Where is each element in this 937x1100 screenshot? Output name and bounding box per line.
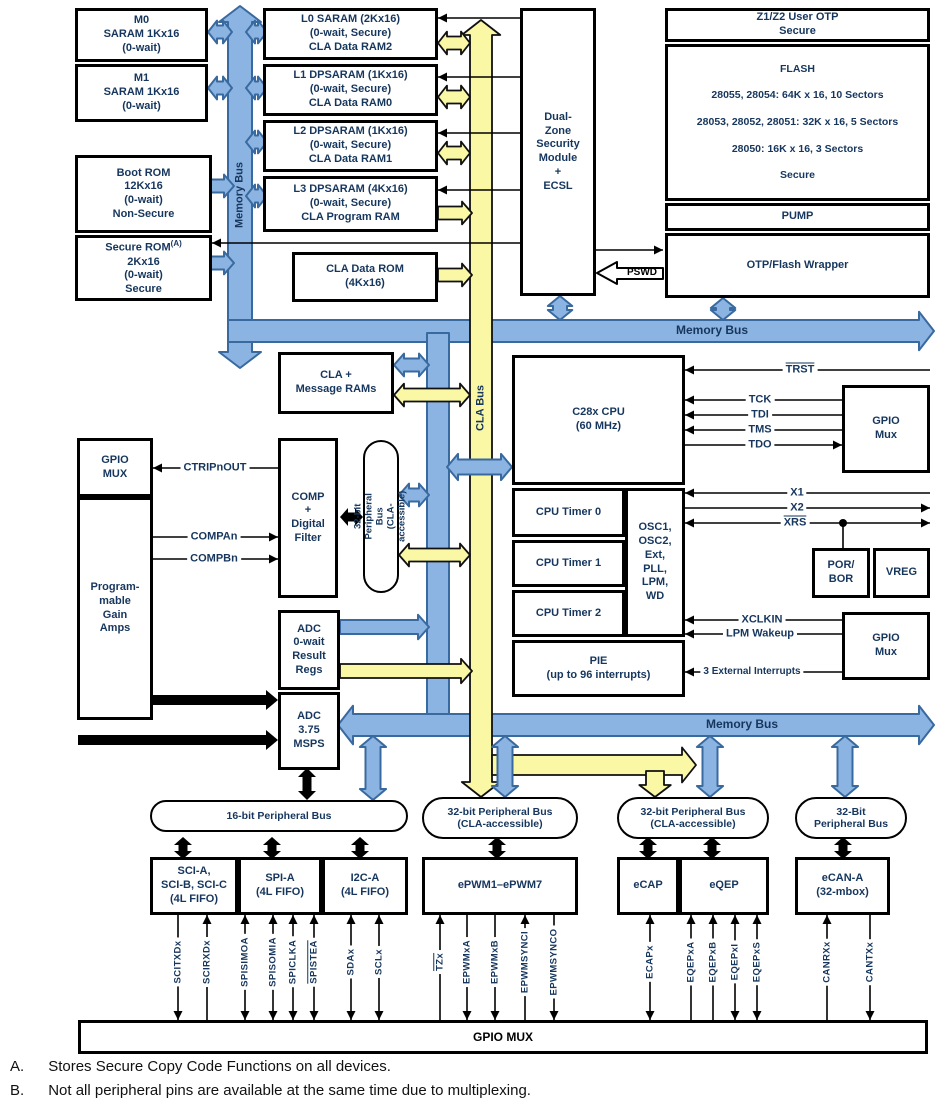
adc-msps-block: ADC 3.75 MSPS [278, 692, 340, 770]
cla-bus-arrow [438, 142, 470, 165]
arrowhead [241, 915, 250, 924]
arrowhead [521, 915, 530, 924]
memory-bus-arrow [210, 175, 234, 198]
memory-bus-arrow [228, 312, 934, 351]
secure-rom-title: Secure ROM [105, 242, 170, 254]
black-arrow [639, 837, 657, 859]
arrowhead [438, 73, 447, 82]
ecap-block: eCAP [617, 857, 679, 915]
footnote-a-id: A. [10, 1058, 24, 1075]
gpio-mux-left-block: GPIO MUX [77, 438, 153, 497]
arrowhead [685, 489, 694, 498]
black-arrow [703, 837, 721, 859]
pin-label-scirxdx: SCIRXDx [202, 937, 212, 987]
otp-flash-wrapper-block: OTP/Flash Wrapper [665, 233, 930, 298]
footnote-a: A.Stores Secure Copy Code Functions on a… [10, 1058, 391, 1075]
tdo-label: TDO [745, 440, 774, 451]
black-arrow [834, 837, 852, 859]
footnote-b: B.Not all peripheral pins are available … [10, 1082, 531, 1099]
arrowhead [833, 441, 842, 450]
pin-label-spiclka: SPICLKA [288, 937, 298, 988]
cla-bus-arrow [438, 32, 470, 55]
gpio-mux-bar: GPIO MUX [78, 1020, 928, 1054]
arrowhead [203, 915, 212, 924]
secure-rom-block: Secure ROM(A)2Kx16 (0-wait) Secure [75, 235, 212, 301]
cla-data-rom-block: CLA Data ROM (4Kx16) [292, 252, 438, 302]
sci-block: SCI-A, SCI-B, SCI-C (4L FIFO) [150, 857, 238, 915]
arrowhead [685, 616, 694, 625]
l0-saram-block: L0 SARAM (2Kx16) (0-wait, Secure) CLA Da… [263, 8, 438, 60]
arrowhead [347, 1011, 356, 1020]
black-arrow [78, 730, 278, 750]
memory-bus-arrow [427, 333, 449, 736]
arrowhead [212, 239, 221, 248]
cpu-timer2-block: CPU Timer 2 [512, 590, 625, 637]
tdi-label: TDI [748, 410, 772, 421]
m1-sram-block: M1 SARAM 1Kx16 (0-wait) [75, 64, 208, 122]
arrowhead [685, 366, 694, 375]
cla-bus-arrow [340, 659, 472, 684]
peripheral-bus-32bit-vertical-capsule: 32-bit Peripheral Bus (CLA-accessible) [363, 440, 399, 593]
arrowhead [375, 915, 384, 924]
ctripnout-label: CTRIPnOUT [181, 463, 250, 474]
cla-bus-arrow [492, 748, 696, 783]
note-a-ref: (A) [171, 239, 182, 248]
cla-bus-arrow [394, 384, 470, 407]
l2-dpsaram-block: L2 DPSARAM (1Kx16) (0-wait, Secure) CLA … [263, 120, 438, 172]
vreg-block: VREG [873, 548, 930, 598]
l1-dpsaram-block: L1 DPSARAM (1Kx16) (0-wait, Secure) CLA … [263, 64, 438, 116]
memory-bus-arrow [711, 298, 736, 320]
arrowhead [685, 396, 694, 405]
arrowhead [921, 519, 930, 528]
black-arrow [298, 768, 316, 800]
pin-label-sclx: SCLx [374, 946, 384, 978]
cla-message-rams-block: CLA + Message RAMs [278, 352, 394, 414]
spi-block: SPI-A (4L FIFO) [238, 857, 322, 915]
memory-bus-arrow [394, 354, 429, 377]
pie-block: PIE (up to 96 interrupts) [512, 640, 685, 697]
arrowhead [646, 1011, 655, 1020]
cla-bus-label: CLA Bus [476, 385, 487, 431]
arrowhead [687, 915, 696, 924]
arrowhead [491, 1011, 500, 1020]
peripheral-bus-32bit-cla-oval-1: 32-bit Peripheral Bus (CLA-accessible) [422, 797, 578, 839]
external-interrupts-label: 3 External Interrupts [700, 667, 803, 677]
cla-bus-arrow [438, 86, 470, 109]
footnote-b-text: Not all peripheral pins are available at… [48, 1082, 531, 1099]
pin-label-tzx: TZx [435, 950, 445, 974]
cla-bus-arrow [438, 264, 472, 287]
memory-bus-arrow [492, 736, 518, 797]
arrowhead [269, 555, 278, 564]
pswd-label: PSWD [627, 268, 657, 278]
arrowhead [241, 1011, 250, 1020]
arrowhead [269, 915, 278, 924]
memory-bus-arrow [548, 296, 573, 320]
black-arrow [263, 837, 281, 859]
arrowhead [685, 630, 694, 639]
arrowhead [731, 1011, 740, 1020]
xclkin-label: XCLKIN [739, 615, 786, 626]
pin-label-spistea: SPISTEA [309, 937, 319, 986]
pin-label-eqepxi: EQEPxI [730, 941, 740, 984]
arrowhead [823, 915, 832, 924]
arrowhead [685, 668, 694, 677]
pump-block: PUMP [665, 203, 930, 231]
arrowhead [438, 129, 447, 138]
compan-label: COMPAn [188, 532, 241, 543]
pin-label-canrxx: CANRXx [822, 938, 832, 985]
peripheral-bus-16bit-oval: 16-bit Peripheral Bus [150, 800, 408, 832]
gpio-mux-jtag-block: GPIO Mux [842, 385, 930, 473]
lpm-wakeup-label: LPM Wakeup [723, 629, 797, 640]
pin-label-eqepxa: EQEPxA [686, 939, 696, 986]
arrowhead [921, 504, 930, 513]
pin-label-epwmsynci: EPWMSYNCI [520, 928, 530, 996]
arrowhead [310, 1011, 319, 1020]
cpu-timer1-block: CPU Timer 1 [512, 540, 625, 587]
pin-label-spisomia: SPISOMIA [268, 934, 278, 990]
eqep-block: eQEP [679, 857, 769, 915]
memory-bus-arrow [338, 706, 934, 745]
pin-label-ecapx: ECAPx [645, 942, 655, 982]
memory-bus-arrow [360, 736, 386, 800]
comp-digital-filter-block: COMP + Digital Filter [278, 438, 338, 598]
arrowhead [550, 1011, 559, 1020]
epwm-block: ePWM1–ePWM7 [422, 857, 578, 915]
flash-secure-label: Secure [780, 169, 815, 182]
arrowhead [866, 1011, 875, 1020]
black-arrow [174, 837, 192, 859]
l3-dpsaram-block: L3 DPSARAM (4Kx16) (0-wait, Secure) CLA … [263, 176, 438, 232]
cla-bus-arrow [399, 544, 470, 567]
arrowhead [685, 519, 694, 528]
gpio-mux-wakeup-block: GPIO Mux [842, 612, 930, 680]
arrowhead [269, 1011, 278, 1020]
tms-label: TMS [745, 425, 774, 436]
pin-label-spisimoa: SPISIMOA [240, 934, 250, 990]
programmable-gain-amps-block: Program- mable Gain Amps [77, 497, 153, 720]
x1-label: X1 [787, 488, 806, 499]
arrowhead [685, 411, 694, 420]
footnote-b-id: B. [10, 1082, 24, 1099]
arrowhead [174, 1011, 183, 1020]
memory-bus-arrow [340, 615, 429, 640]
arrowhead [375, 1011, 384, 1020]
memory-bus-vertical-label: Memory Bus [235, 162, 246, 228]
z1z2-user-otp-block: Z1/Z2 User OTP Secure [665, 8, 930, 42]
flash-block: FLASH 28055, 28054: 64K x 16, 10 Sectors… [665, 44, 930, 201]
memory-bus-arrow [447, 454, 512, 480]
memory-bus-arrow [210, 252, 234, 275]
c28x-cpu-block: C28x CPU (60 MHz) [512, 355, 685, 485]
arrowhead [289, 1011, 298, 1020]
black-arrow [153, 690, 278, 710]
compbn-label: COMPBn [187, 554, 241, 565]
por-bor-block: POR/ BOR [812, 548, 870, 598]
ecan-block: eCAN-A (32-mbox) [795, 857, 890, 915]
tck-label: TCK [746, 395, 775, 406]
arrowhead [269, 533, 278, 542]
memory-bus-arrow [208, 21, 232, 44]
pin-label-cantxx: CANTXx [865, 939, 875, 985]
flash-title: FLASH [780, 63, 815, 76]
arrowhead [438, 186, 447, 195]
pin-label-eqepxs: EQEPxS [752, 939, 762, 985]
flash-size-row: 28053, 28052, 28051: 32K x 16, 5 Sectors [697, 116, 898, 129]
block-diagram-canvas: M0 SARAM 1Kx16 (0-wait) M1 SARAM 1Kx16 (… [0, 0, 937, 1100]
arrowhead [685, 426, 694, 435]
xrs-label: XRS [781, 518, 810, 529]
memory-bus-arrow [832, 736, 858, 797]
adc-result-regs-block: ADC 0-wait Result Regs [278, 610, 340, 690]
pin-label-epwmxb: EPWMxB [490, 937, 500, 987]
cla-bus-arrow [438, 202, 472, 225]
peripheral-bus-32bit-vertical-label: 32-bit Peripheral Bus (CLA-accessible) [354, 491, 409, 542]
arrowhead [310, 915, 319, 924]
black-arrow [351, 837, 369, 859]
dual-zone-security-block: Dual- Zone Security Module + ECSL [520, 8, 596, 296]
pin-label-sdax: SDAx [346, 946, 356, 979]
arrowhead [654, 246, 663, 255]
arrowhead [436, 915, 445, 924]
pin-label-scitxdx: SCITXDx [173, 938, 183, 987]
arrowhead [646, 915, 655, 924]
xrs-junction-dot [839, 519, 847, 527]
memory-bus-arrow [697, 736, 723, 797]
boot-rom-block: Boot ROM 12Kx16 (0-wait) Non-Secure [75, 155, 212, 233]
arrowhead [153, 464, 162, 473]
pin-label-eqepxb: EQEPxB [708, 939, 718, 986]
arrowhead [289, 915, 298, 924]
memory-bus-bottom-label: Memory Bus [706, 718, 778, 730]
arrowhead [463, 1011, 472, 1020]
arrowhead [753, 915, 762, 924]
arrowhead [347, 915, 356, 924]
flash-size-row: 28055, 28054: 64K x 16, 10 Sectors [711, 89, 883, 102]
x2-label: X2 [787, 503, 806, 514]
footnote-a-text: Stores Secure Copy Code Functions on all… [48, 1058, 391, 1075]
pin-label-epwmsynco: EPWMSYNCO [549, 926, 559, 999]
memory-bus-arrow [208, 77, 232, 100]
arrowhead [753, 1011, 762, 1020]
pin-label-epwmxa: EPWMxA [462, 937, 472, 987]
trst-label: TRST [783, 365, 818, 376]
arrowhead [731, 915, 740, 924]
black-arrow [488, 837, 506, 859]
arrowhead [709, 915, 718, 924]
arrowhead [438, 14, 447, 23]
m0-sram-block: M0 SARAM 1Kx16 (0-wait) [75, 8, 208, 62]
flash-size-row: 28050: 16K x 16, 3 Sectors [732, 143, 863, 156]
peripheral-bus-32bit-cla-oval-2: 32-bit Peripheral Bus (CLA-accessible) [617, 797, 769, 839]
secure-rom-detail: 2Kx16 (0-wait) Secure [105, 256, 182, 297]
i2c-block: I2C-A (4L FIFO) [322, 857, 408, 915]
cpu-timer0-block: CPU Timer 0 [512, 488, 625, 537]
cla-bus-arrow [639, 771, 671, 797]
memory-bus-top-label: Memory Bus [676, 324, 748, 336]
peripheral-bus-32bit-oval: 32-Bit Peripheral Bus [795, 797, 907, 839]
osc-pll-block: OSC1, OSC2, Ext, PLL, LPM, WD [625, 488, 685, 637]
